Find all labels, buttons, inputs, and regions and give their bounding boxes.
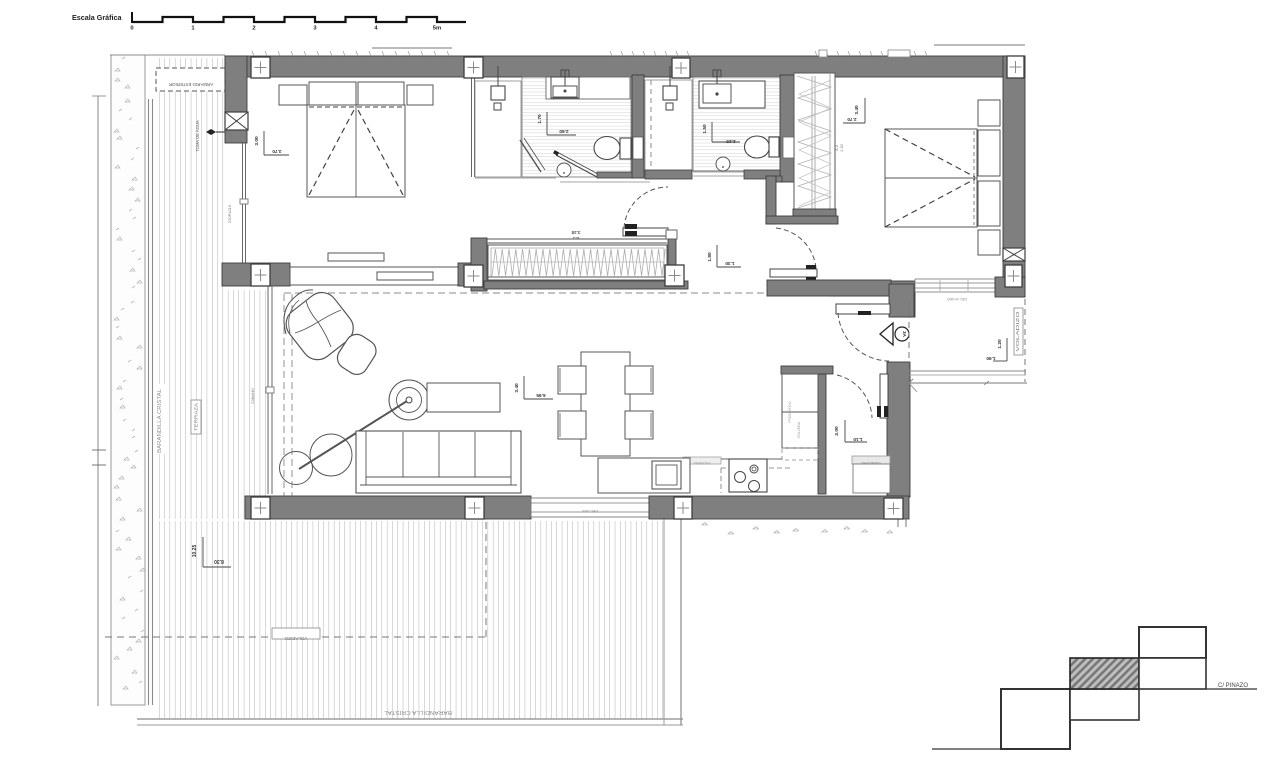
svg-text:0: 0 [130,26,133,32]
svg-text:ENCIMERA: ENCIMERA [693,461,711,465]
svg-text:Escala Gráfica: Escala Gráfica [72,13,123,22]
svg-text:3.40: 3.40 [854,105,860,115]
svg-text:5m: 5m [433,26,441,32]
svg-text:1.90: 1.90 [986,355,996,361]
svg-text:3.00: 3.00 [254,136,260,146]
svg-text:3.28: 3.28 [571,230,580,235]
svg-text:2: 2 [252,26,255,32]
svg-text:10.25: 10.25 [192,545,198,558]
svg-text:1.20: 1.20 [997,339,1003,349]
svg-text:220Px210: 220Px210 [227,204,232,223]
svg-text:BARANDILLA CRISTAL: BARANDILLA CRISTAL [157,389,163,453]
svg-text:TERRAZA: TERRAZA [194,402,199,431]
svg-text:3A: 3A [902,331,907,338]
svg-text:2.00: 2.00 [834,426,840,436]
svg-text:2.30: 2.30 [840,144,844,151]
svg-text:1.80: 1.80 [707,252,713,262]
svg-text:3.70: 3.70 [272,148,282,154]
svg-text:1.70: 1.70 [537,114,543,124]
svg-text:TOMA DE AGUA: TOMA DE AGUA [195,120,200,152]
svg-text:A.3: A.3 [835,145,839,151]
svg-text:COLUMNA: COLUMNA [797,421,801,438]
svg-text:2.60: 2.60 [559,128,569,134]
svg-text:A.1: A.1 [572,236,579,241]
svg-text:VOLADIZO: VOLADIZO [1015,310,1020,351]
svg-text:BARANDILLA CRISTAL: BARANDILLA CRISTAL [384,709,452,715]
svg-text:6.95: 6.95 [536,392,546,398]
svg-text:1.10: 1.10 [853,436,863,442]
svg-text:2.25: 2.25 [726,138,736,144]
svg-text:1.30: 1.30 [725,260,735,266]
svg-text:2.70: 2.70 [847,116,857,122]
svg-text:8.30: 8.30 [214,558,224,564]
svg-text:DEL H=600: DEL H=600 [947,297,967,301]
svg-text:ARMARIO EXTERIOR: ARMARIO EXTERIOR [169,82,213,87]
svg-text:3.40: 3.40 [514,383,520,393]
svg-text:1.50: 1.50 [702,124,708,134]
svg-text:C/ PINAZO: C/ PINAZO [1218,683,1248,689]
svg-text:FRIGORIFICO: FRIGORIFICO [788,401,792,422]
svg-text:VOLADIZO: VOLADIZO [284,636,307,641]
svg-text:238x540: 238x540 [250,388,255,404]
svg-text:DEL=600: DEL=600 [582,509,598,513]
